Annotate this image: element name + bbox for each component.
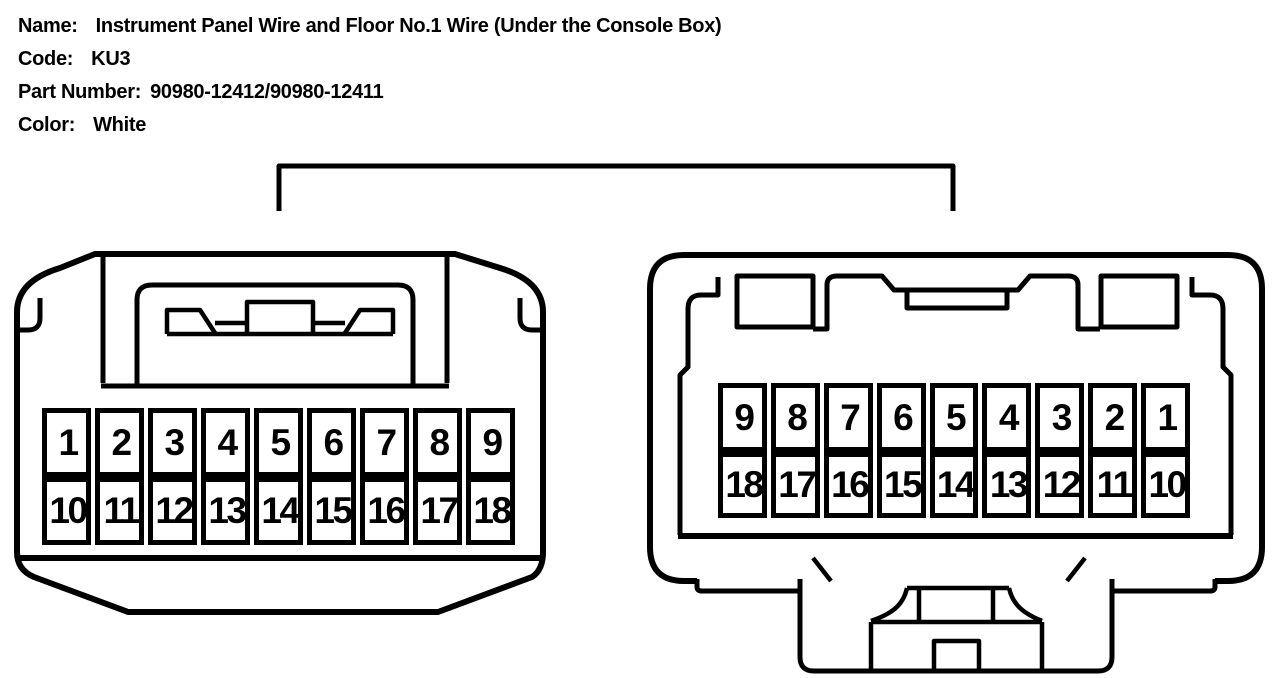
left-connector-pin-grid: 123456789101112131415161718	[42, 408, 515, 545]
pin-cell-left-2: 2	[95, 408, 144, 477]
pin-cell-left-14: 14	[254, 477, 303, 545]
pin-cell-right-17: 17	[771, 452, 820, 518]
left-connector-lock-details	[167, 302, 393, 334]
pin-cell-right-10: 10	[1141, 452, 1190, 518]
left-connector-lock-housing	[101, 256, 449, 386]
right-connector-clip-right	[1101, 276, 1177, 327]
pin-cell-right-3: 3	[1035, 383, 1084, 452]
pin-cell-left-18: 18	[466, 477, 515, 545]
right-connector-pin-row-bottom: 181716151413121110	[718, 452, 1190, 518]
right-connector-bottom-tab	[697, 579, 1215, 671]
pin-cell-left-12: 12	[148, 477, 197, 545]
right-connector-pin-grid: 987654321181716151413121110	[718, 383, 1190, 518]
pin-cell-right-14: 14	[930, 452, 979, 518]
pin-cell-left-5: 5	[254, 408, 303, 477]
pin-cell-right-2: 2	[1088, 383, 1137, 452]
pin-cell-left-13: 13	[201, 477, 250, 545]
pin-cell-right-15: 15	[877, 452, 926, 518]
pin-cell-left-16: 16	[360, 477, 409, 545]
pin-cell-left-8: 8	[413, 408, 462, 477]
left-connector-pin-row-bottom: 101112131415161718	[42, 477, 515, 545]
pin-cell-right-5: 5	[930, 383, 979, 452]
right-connector-clip-left	[737, 276, 813, 327]
pin-cell-left-11: 11	[95, 477, 144, 545]
pin-cell-right-12: 12	[1035, 452, 1084, 518]
right-connector-tab-details	[813, 558, 1085, 671]
pin-cell-left-15: 15	[307, 477, 356, 545]
pin-cell-left-17: 17	[413, 477, 462, 545]
pin-cell-left-6: 6	[307, 408, 356, 477]
pin-cell-left-10: 10	[42, 477, 91, 545]
connector-linework	[0, 0, 1280, 678]
connector-diagram-page: Name:Instrument Panel Wire and Floor No.…	[0, 0, 1280, 678]
left-connector-pin-row-top: 123456789	[42, 408, 515, 477]
pin-cell-left-3: 3	[148, 408, 197, 477]
pin-cell-left-4: 4	[201, 408, 250, 477]
pin-cell-right-13: 13	[982, 452, 1031, 518]
pin-cell-left-7: 7	[360, 408, 409, 477]
pin-cell-right-7: 7	[824, 383, 873, 452]
pin-cell-right-8: 8	[771, 383, 820, 452]
pin-cell-right-6: 6	[877, 383, 926, 452]
pin-cell-right-9: 9	[718, 383, 767, 452]
right-connector-pin-row-top: 987654321	[718, 383, 1190, 452]
pin-cell-right-4: 4	[982, 383, 1031, 452]
pin-cell-right-1: 1	[1141, 383, 1190, 452]
connector-pair-bracket	[279, 166, 953, 211]
pin-cell-left-1: 1	[42, 408, 91, 477]
pin-cell-right-11: 11	[1088, 452, 1137, 518]
pin-cell-right-16: 16	[824, 452, 873, 518]
pin-cell-left-9: 9	[466, 408, 515, 477]
pin-cell-right-18: 18	[718, 452, 767, 518]
